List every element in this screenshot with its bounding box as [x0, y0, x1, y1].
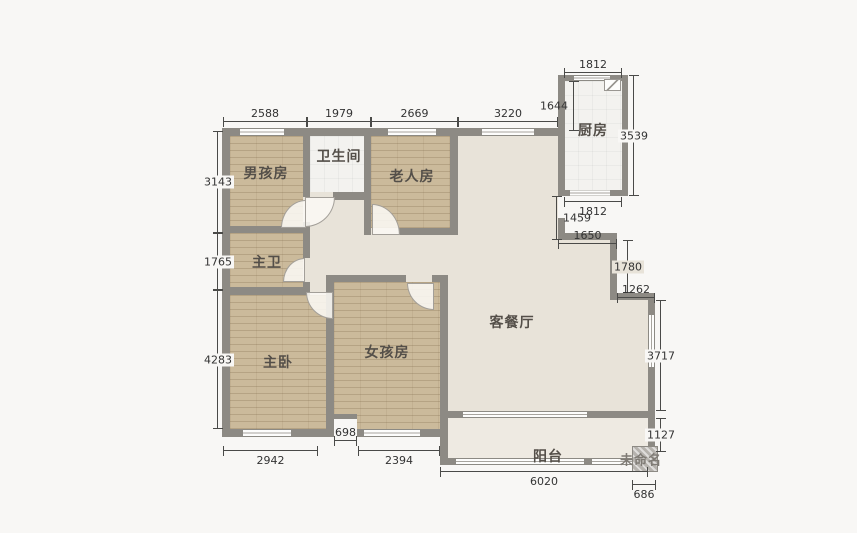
living-step-floor — [617, 300, 648, 411]
dim-top-bath: 1979 — [307, 121, 371, 122]
dim-value: 3220 — [494, 107, 522, 120]
dim-value: 3717 — [645, 349, 677, 362]
dim-bottom-master: 2942 — [223, 450, 318, 451]
room-label-living: 客餐厅 — [490, 312, 535, 332]
wall-notch-cap — [334, 414, 357, 419]
dim-value: 6020 — [530, 475, 558, 488]
window-master-bottom — [243, 430, 291, 436]
slider-living-balcony — [463, 412, 587, 417]
floor-plan-canvas: 男孩房 卫生间 老人房 厨房 主卫 主卧 女孩房 客餐厅 阳台 未命名 2588… — [0, 0, 857, 533]
window-top-elder — [388, 129, 436, 135]
dim-entry-gap: 1459 — [556, 196, 557, 240]
window-top-boy — [240, 129, 284, 135]
dim-value: 2669 — [401, 107, 429, 120]
dim-value: 3143 — [202, 176, 234, 189]
dim-left-master: 4283 — [217, 290, 218, 429]
room-label-bathroom: 卫生间 — [317, 146, 362, 166]
wall-girl-top-left — [334, 275, 406, 282]
dim-value: 2942 — [257, 454, 285, 467]
room-label-boy: 男孩房 — [244, 163, 289, 183]
dim-kitchen-right: 3539 — [633, 75, 634, 196]
dim-value: 698 — [335, 426, 356, 439]
dim-balcony-right: 1127 — [660, 418, 661, 452]
dim-value: 1979 — [325, 107, 353, 120]
wall-mbath-right-upper — [303, 226, 310, 258]
dim-kitchen-top: 1812 — [564, 72, 622, 73]
wall-elder-right — [450, 128, 458, 235]
wall-bath-elder — [364, 128, 371, 235]
dim-value: 1780 — [612, 260, 644, 273]
wall-left — [222, 128, 230, 437]
window-girl-bottom — [364, 430, 420, 436]
wall-elder-bottom — [398, 228, 458, 235]
dim-unnamed-width: 686 — [632, 484, 656, 485]
dim-left-master-bath: 1765 — [217, 233, 218, 290]
dim-value: 1812 — [579, 58, 607, 71]
room-label-balcony: 阳台 — [533, 446, 563, 466]
vent-icon — [604, 79, 621, 91]
room-label-kitchen: 厨房 — [578, 120, 608, 140]
room-label-girl: 女孩房 — [365, 342, 410, 362]
dim-value: 1650 — [574, 229, 602, 242]
room-label-unnamed: 未命名 — [620, 450, 662, 469]
wall-mbath-bottom — [222, 287, 310, 295]
window-balcony-left — [456, 459, 584, 464]
dim-left-boy: 3143 — [217, 131, 218, 233]
wall-boy-right-upper — [303, 128, 310, 197]
wall-kitchen-left — [558, 75, 565, 196]
wall-girl-top-right — [432, 275, 440, 282]
entry-floor — [558, 240, 617, 411]
dim-value: 3539 — [618, 129, 650, 142]
dim-entry-wall: 1650 — [558, 243, 617, 244]
dim-bottom-girl: 2394 — [358, 450, 440, 451]
dim-balcony-bottom: 6020 — [440, 471, 648, 472]
dim-kitchen-bottom: 1812 — [564, 201, 622, 202]
dim-value: 4283 — [202, 353, 234, 366]
dim-notch: 698 — [334, 440, 357, 441]
room-label-elder: 老人房 — [390, 166, 435, 186]
wall-girl-right — [440, 275, 448, 465]
dim-value: 2588 — [251, 107, 279, 120]
slider-kitchen-door — [570, 191, 610, 195]
dim-value: 686 — [634, 488, 655, 501]
room-label-master: 主卧 — [263, 352, 293, 372]
dim-top-boy: 2588 — [223, 121, 307, 122]
dim-entry-height: 1644 — [573, 81, 574, 131]
dim-living-right: 3717 — [660, 300, 661, 411]
dim-value: 1765 — [202, 255, 234, 268]
dim-value: 1459 — [561, 212, 593, 225]
dim-top-living: 3220 — [458, 121, 558, 122]
dim-step-h: 1262 — [617, 297, 655, 298]
dim-value: 1262 — [622, 283, 650, 296]
dim-value: 1127 — [645, 429, 677, 442]
dim-value: 1644 — [538, 100, 570, 113]
window-top-living — [482, 129, 534, 135]
dim-value: 2394 — [385, 454, 413, 467]
wall-kitchen-bottom-right — [610, 190, 628, 196]
dim-top-elder: 2669 — [371, 121, 458, 122]
room-label-master-bath: 主卫 — [252, 252, 282, 272]
